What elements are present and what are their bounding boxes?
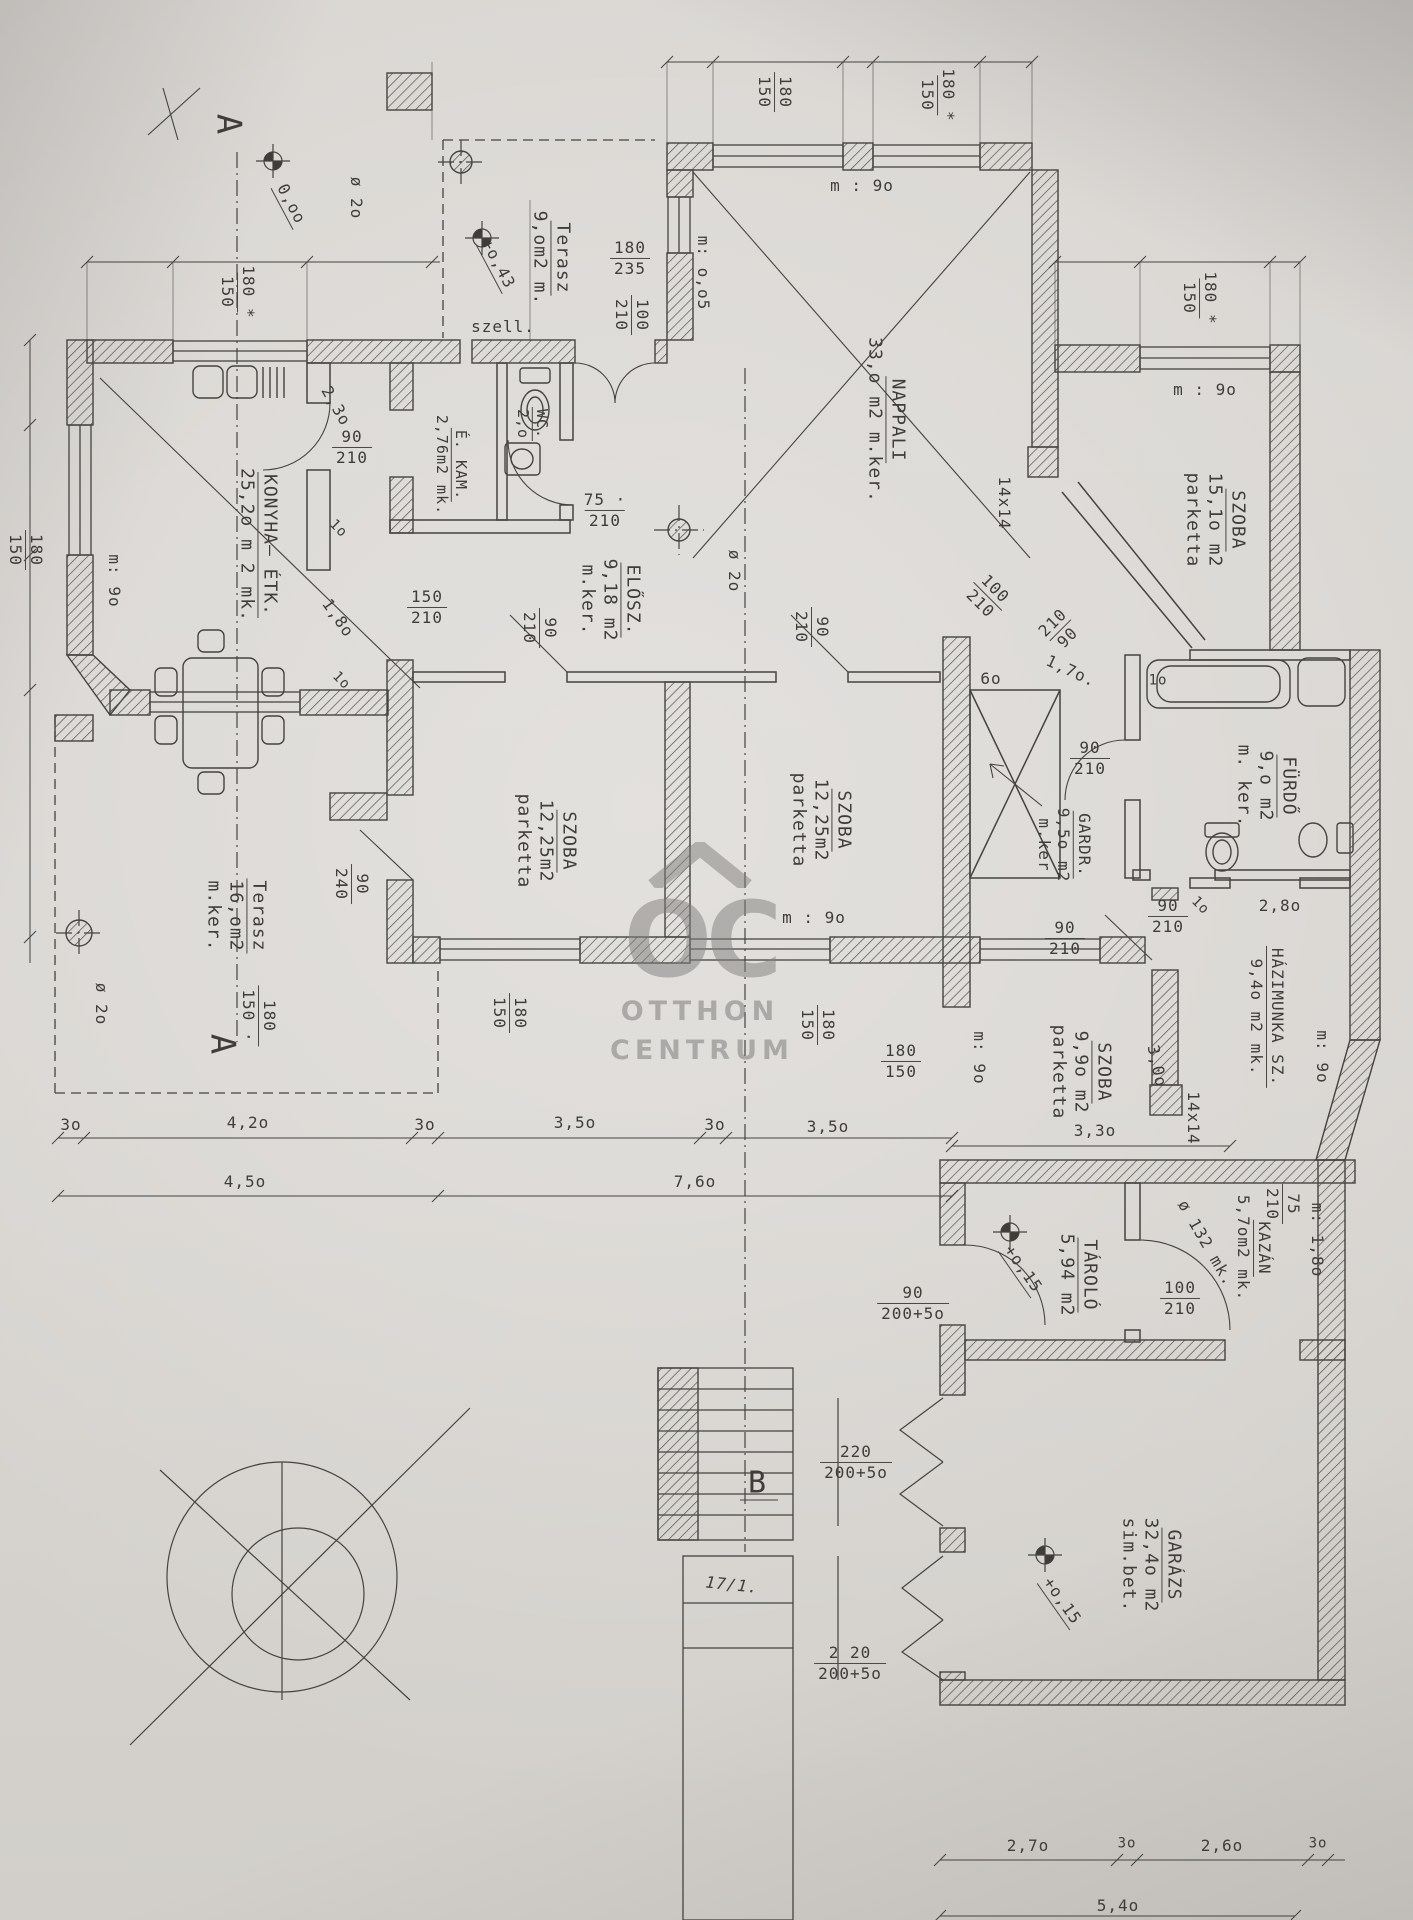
dim-szoba1-window: 180150 [490, 993, 530, 1033]
dim-konyha-door: 90210 [332, 427, 372, 467]
garage-chain-540: 5,4o [1097, 1896, 1140, 1916]
chimney-label-2: 14x14 [1183, 1091, 1203, 1144]
width-280: 2,8o [1259, 896, 1302, 916]
room-label-szoba4: SZOBA9,9o m2parketta [1048, 1025, 1115, 1120]
height-kazan: m: 1,8o [1307, 1203, 1327, 1277]
dim-szoba2-door: 90210 [792, 607, 832, 647]
tub-width-10: 1o [1149, 672, 1168, 689]
chain-3o-1: 3o [60, 1115, 81, 1135]
dim-kazan-door: 100210 [1160, 1278, 1200, 1318]
dim-szoba3-window: 180 *150 [1180, 271, 1220, 324]
garage-chain-3oa: 3o [1118, 1835, 1137, 1852]
dim-szoba4-window: 180150 [881, 1041, 921, 1081]
height-hazimunka: m: 9o [1312, 1030, 1332, 1083]
floor-plan-page: OC OTTHON CENTRUM Terasz9,om2 m. NAPPALI… [0, 0, 1413, 1920]
chain-350b: 3,5o [807, 1117, 850, 1137]
room-label-wc: WC.2,o [513, 407, 551, 441]
dim-entry-door2: 100210 [612, 295, 652, 335]
height-szoba3: m : 9o [1173, 380, 1237, 400]
room-label-tarolo: TÁROLÓ5,94 m2 [1056, 1234, 1101, 1317]
width-330: 3,3o [1074, 1121, 1117, 1141]
dim-furdo-door: 90210 [1070, 738, 1110, 778]
dim-wc-door: 75 ·210 [584, 490, 627, 530]
column-dia-terrace: ø 2o [91, 983, 111, 1026]
dim-kazan-door2: 75210 [1263, 1184, 1303, 1224]
chain-450: 4,5o [224, 1172, 267, 1192]
title-stamp [683, 1556, 793, 1920]
dim-terasz-door: 90240 [332, 864, 372, 904]
chimney-label-1: 14x14 [994, 476, 1014, 529]
dim-hall-door: 150210 [407, 587, 447, 627]
room-label-szoba1: SZOBA12,25m2parketta [513, 794, 580, 889]
room-label-terasz-top: Terasz9,om2 m. [529, 211, 574, 306]
kitchen-sink [193, 366, 223, 398]
width-60: 6o [980, 669, 1001, 689]
chain-350a: 3,5o [554, 1113, 597, 1133]
dim-window: 180 *150 [218, 265, 258, 318]
bathtub [1147, 660, 1290, 708]
dim-nappali-window1: 180150 [755, 72, 795, 112]
room-label-terasz-bottom: Terasz16,om2m.ker. [203, 878, 270, 953]
height-terrace: m: o,o5 [693, 236, 713, 310]
dim-terasz-window: 180150 · [239, 985, 279, 1046]
wc-toilet [520, 368, 550, 383]
bath-basin [1298, 658, 1345, 706]
vent-label: szell. [471, 317, 535, 337]
section-marker-a-top: A [207, 114, 248, 134]
dining-table [183, 658, 258, 768]
room-label-furdo: FÜRDŐ9,o m2m. ker. [1233, 745, 1300, 828]
dim-garage-door1: 220200+5o [820, 1442, 892, 1482]
room-label-gardr: GARDR.9,5o m2m.ker [1034, 808, 1094, 882]
room-label-nappali: NAPPALI33,o m2 m.ker. [864, 337, 909, 503]
chain-420: 4,2o [227, 1113, 270, 1133]
dim-left-window: 180150 [6, 530, 46, 570]
dim-tarolo-door: 90200+5o [877, 1283, 949, 1323]
dim-gardr-door: 90210 [1045, 918, 1085, 958]
room-label-garazs: GARÁZS32,4o m2sim.bet. [1118, 1518, 1185, 1613]
garage-chain-270: 2,7o [1007, 1836, 1050, 1856]
dim-entry-door: 180235 [610, 238, 650, 278]
column-dia-hall: ø 2o [724, 550, 744, 593]
section-marker-a-bottom: A [201, 1034, 242, 1054]
garage-chain-260: 2,6o [1201, 1836, 1244, 1856]
room-label-ekam: É. KAM.2,76m2 mk. [432, 415, 470, 515]
garage-chain-3ob: 3o [1309, 1835, 1328, 1852]
room-label-szoba2: SZOBA12,25m2parketta [788, 773, 855, 868]
section-marker-b: B [748, 1466, 766, 1503]
chain-3o-2: 3o [414, 1115, 435, 1135]
room-label-szoba3: SZOBA15,1o m2parketta [1182, 473, 1249, 568]
room-label-elosz: ELŐSZ.9,18 m2m.ker. [577, 559, 644, 642]
column-dia-top: ø 2o [346, 177, 366, 220]
dim-hazimunka-door: 90210 [1148, 896, 1188, 936]
room-label-konyha: KONYHA– ÉTK.25,2o m 2 mk. [236, 468, 281, 622]
chain-760: 7,6o [674, 1172, 717, 1192]
dim-nappali-window2: 180 *150 [918, 68, 958, 121]
room-label-hazimunka: HÁZIMUNKA SZ.9,4o m2 mk. [1247, 946, 1287, 1088]
dim-szoba1-door: 90210 [520, 608, 560, 648]
site-detail-circle [130, 1408, 470, 1745]
columns [66, 151, 690, 946]
dim-garage-door2: 2 20200+5o [814, 1643, 886, 1683]
garage-doors [838, 1398, 943, 1680]
height-szoba2: m : 9o [782, 908, 846, 928]
height-konyha: m: 9o [104, 554, 124, 607]
height-nappali: m : 9o [830, 176, 894, 196]
chain-3o-3: 3o [704, 1115, 725, 1135]
height-szoba4: m: 9o [969, 1031, 989, 1084]
dim-szoba2-window: 180150 [798, 1005, 838, 1045]
